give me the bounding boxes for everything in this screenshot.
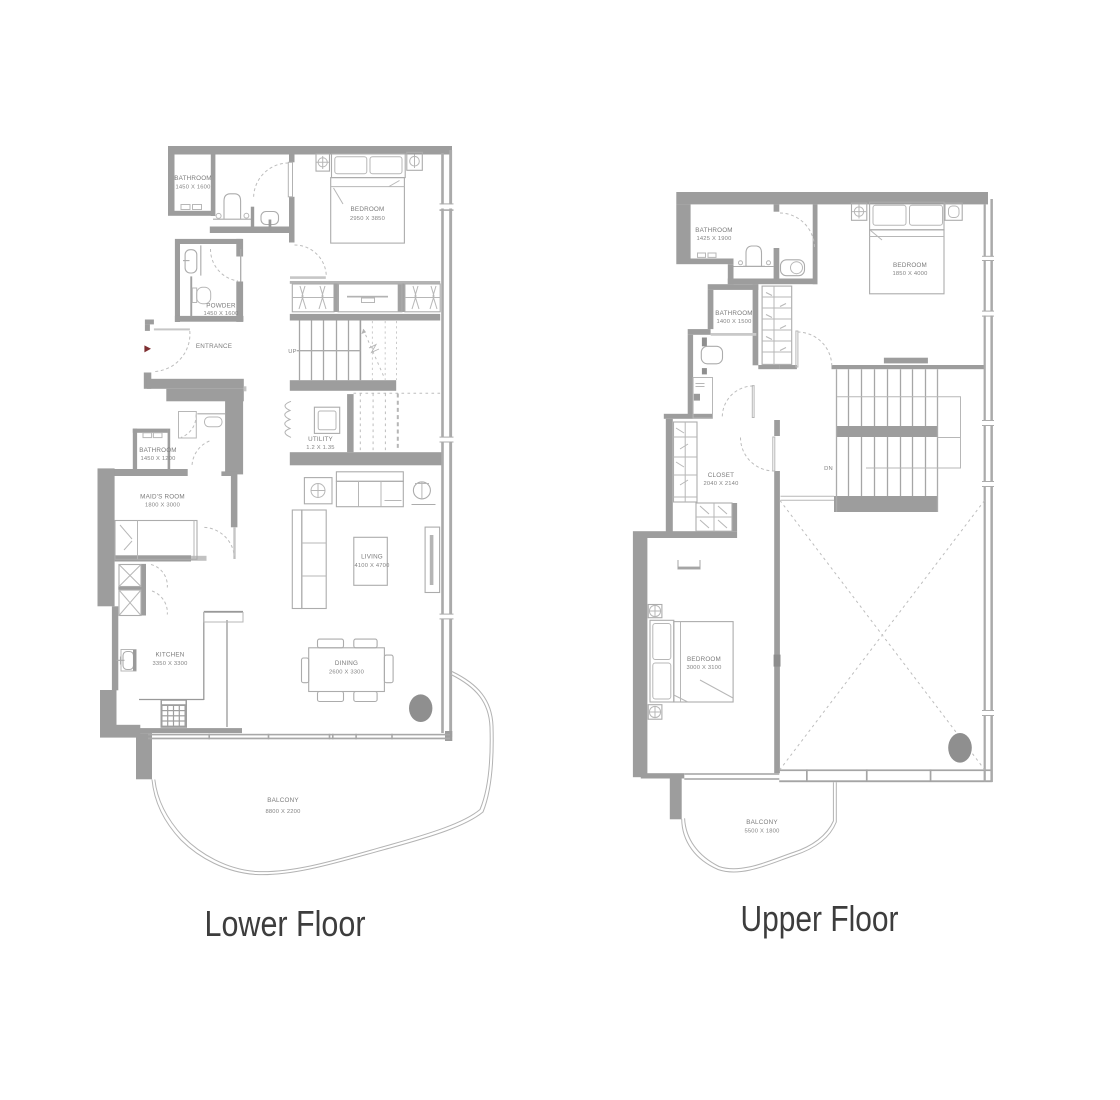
svg-text:Upper Floor: Upper Floor — [741, 898, 899, 939]
svg-text:BEDROOM: BEDROOM — [687, 656, 721, 663]
svg-text:CLOSET: CLOSET — [708, 472, 734, 479]
svg-text:1400 X 1500: 1400 X 1500 — [716, 319, 751, 325]
svg-text:3350 X 3300: 3350 X 3300 — [152, 661, 187, 667]
svg-text:BATHROOM: BATHROOM — [139, 447, 177, 454]
svg-text:MAID'S ROOM: MAID'S ROOM — [140, 494, 185, 501]
svg-text:8800 X 2200: 8800 X 2200 — [265, 809, 300, 815]
svg-text:ENTRANCE: ENTRANCE — [196, 343, 232, 350]
svg-text:4100 X 4700: 4100 X 4700 — [354, 563, 389, 569]
svg-text:UTILITY: UTILITY — [308, 436, 333, 443]
svg-text:BEDROOM: BEDROOM — [351, 206, 385, 213]
svg-text:DINING: DINING — [335, 660, 358, 667]
svg-text:DN: DN — [824, 466, 833, 472]
svg-text:1450 X 1200: 1450 X 1200 — [140, 456, 175, 462]
svg-text:1450 X 1600: 1450 X 1600 — [203, 311, 238, 317]
svg-text:2600 X 3300: 2600 X 3300 — [329, 670, 364, 676]
svg-text:2040 X 2140: 2040 X 2140 — [703, 481, 738, 487]
svg-text:POWDER: POWDER — [206, 303, 236, 310]
svg-text:3000 X 3100: 3000 X 3100 — [686, 665, 721, 671]
svg-text:BATHROOM: BATHROOM — [174, 175, 212, 182]
svg-text:1.2 X 1.35: 1.2 X 1.35 — [306, 445, 334, 451]
svg-text:BALCONY: BALCONY — [746, 819, 778, 826]
svg-text:1425 X 1900: 1425 X 1900 — [696, 236, 731, 242]
svg-text:1450 X 1600: 1450 X 1600 — [175, 185, 210, 191]
svg-text:LIVING: LIVING — [361, 554, 383, 561]
svg-text:1850 X 4000: 1850 X 4000 — [892, 271, 927, 277]
svg-text:BALCONY: BALCONY — [267, 797, 299, 804]
svg-text:BEDROOM: BEDROOM — [893, 262, 927, 269]
svg-text:KITCHEN: KITCHEN — [155, 652, 184, 659]
svg-text:Lower Floor: Lower Floor — [205, 903, 366, 944]
svg-text:1800 X 3000: 1800 X 3000 — [145, 503, 180, 509]
svg-text:BATHROOM: BATHROOM — [715, 310, 753, 317]
svg-text:5500 X 1800: 5500 X 1800 — [744, 829, 779, 835]
svg-text:2950 X 3850: 2950 X 3850 — [350, 216, 385, 222]
svg-text:UP: UP — [288, 349, 296, 355]
svg-text:BATHROOM: BATHROOM — [695, 227, 733, 234]
